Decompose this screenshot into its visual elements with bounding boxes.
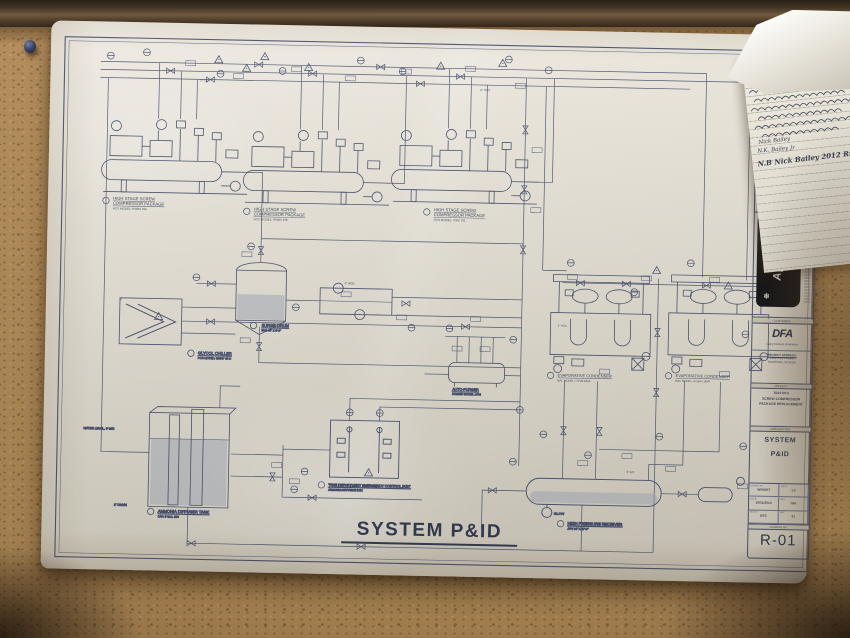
svg-text:WATER LEVEL, 6' MIN: WATER LEVEL, 6' MIN — [83, 426, 114, 431]
field-value: LC — [780, 488, 807, 493]
svg-text:AUTO-PURGER: AUTO-PURGER — [452, 387, 479, 392]
customer-section: CUSTOMER: DFA Dairy Farmers of America P… — [751, 318, 812, 385]
dfa-subtitle: Dairy Farmers of America — [752, 343, 812, 352]
svg-text:4" HGD: 4" HGD — [344, 281, 355, 285]
ammonia-diffuser-tank: AMMONIA DIFFUSER TANK CAP: 5 W.C. 500 WA… — [82, 405, 236, 520]
svg-text:RVS 48" X 9'-6": RVS 48" X 9'-6" — [261, 328, 281, 332]
svg-text:6" ES: 6" ES — [627, 470, 635, 474]
compressor-package-3: HIGH STAGE SCREW COMPRESSOR PACKAGE RCS … — [391, 128, 541, 224]
pid-schematic: HIGH STAGE SCREW COMPRESSOR PACKAGE RCS … — [41, 20, 818, 583]
customer-label: CUSTOMER: — [753, 319, 813, 326]
address-line-2: HUGHSON, CA 95326 — [752, 360, 812, 365]
drawing-no-label: DRAWING NO: — [748, 524, 808, 530]
field-value: NTS — [750, 514, 777, 519]
description-section: DESCRIPTION: SYSTEM P&ID — [749, 426, 810, 484]
field-value: 01 — [780, 514, 807, 519]
push-pin — [24, 40, 36, 53]
field-value: WRIGHT — [750, 487, 777, 492]
project-line-1: 2014 RC3 — [751, 390, 811, 395]
svg-text:"FIRE DEPARTMENT EMERGENCY CON: "FIRE DEPARTMENT EMERGENCY CONTROL BOX" — [328, 483, 411, 489]
project-line-3: PACKAGE REPLACEMENT — [751, 402, 811, 407]
high-pressure-receiver: OIL POT HIGH PRESSURE RECEIVER APV 84" X… — [525, 473, 744, 534]
description-label: DESCRIPTION: — [750, 426, 810, 433]
svg-text:CAP: 5 W.C. 500: CAP: 5 W.C. 500 — [158, 514, 180, 518]
svg-text:RCS MODEL: RWBII 496: RCS MODEL: RWBII 496 — [254, 217, 288, 222]
glycol-chiller: GLYCOL CHILLER PCS MODEL: GWHP 60 S — [119, 298, 233, 361]
svg-text:APV 84" X 17'-0": APV 84" X 17'-0" — [567, 527, 588, 531]
project-section: PROJECT: 2014 RC3 SCREW COMPRESSOR PACKA… — [751, 383, 812, 427]
drawing-number: R-01 — [748, 532, 808, 552]
svg-text:RCS MODEL: RWBII 496: RCS MODEL: RWBII 496 — [113, 206, 147, 211]
svg-text:RCS MODEL: VSM 701: RCS MODEL: VSM 701 — [434, 218, 466, 223]
svg-text:AMMONIA DIFFUSION BOX: AMMONIA DIFFUSION BOX — [328, 488, 363, 493]
svg-text:BAC MODEL: CXVB-185A: BAC MODEL: CXVB-185A — [557, 378, 590, 383]
heat-exchanger — [320, 283, 393, 320]
svg-text:2" HSS: 2" HSS — [480, 88, 490, 92]
svg-text:HANSEN MODEL: APM: HANSEN MODEL: APM — [452, 392, 482, 397]
project-label: PROJECT: — [751, 383, 811, 390]
snowflake-icon: ❄ — [763, 292, 770, 302]
compressor-package-1: HIGH STAGE SCREW COMPRESSOR PACKAGE RCS … — [101, 118, 251, 213]
project-line-2: SCREW COMPRESSOR — [751, 396, 811, 401]
svg-text:PCS MODEL: GWHP 60 S: PCS MODEL: GWHP 60 S — [198, 356, 231, 361]
sheet-title: SYSTEM P&ID — [341, 518, 517, 547]
evaporative-condenser-1: EVAPORATIVE CONDENSER BAC MODEL: CXVB-18… — [547, 274, 651, 384]
svg-text:1" HGL: 1" HGL — [558, 324, 568, 328]
surge-drum: SURGE DRUM RVS 48" X 9'-6" — [235, 262, 290, 335]
field-value: 10/31/2014 — [750, 500, 777, 505]
field-value: BH — [780, 501, 807, 506]
svg-text:1" DRAIN: 1" DRAIN — [114, 503, 127, 507]
fields-table: DRAWN BY:WRIGHT APPD:LC DATE:10/31/2014 … — [749, 483, 810, 525]
svg-text:BAC MODEL: ECBAT-185R: BAC MODEL: ECBAT-185R — [675, 379, 710, 384]
compressor-package-2: HIGH STAGE SCREW COMPRESSOR PACKAGE RCS … — [243, 129, 393, 224]
svg-text:3" CD: 3" CD — [200, 78, 209, 82]
drawing-number-section: DRAWING NO: R-01 — [748, 524, 809, 558]
dfa-logo: DFA — [752, 328, 812, 343]
fire-dept-control-box: "FIRE DEPARTMENT EMERGENCY CONTROL BOX" … — [318, 420, 413, 493]
description-line-2: P&ID — [750, 451, 810, 461]
pid-drawing-sheet: HIGH STAGE SCREW COMPRESSOR PACKAGE RCS … — [41, 20, 818, 583]
svg-text:OIL POT: OIL POT — [554, 512, 565, 516]
description-line-1: SYSTEM — [750, 437, 810, 447]
